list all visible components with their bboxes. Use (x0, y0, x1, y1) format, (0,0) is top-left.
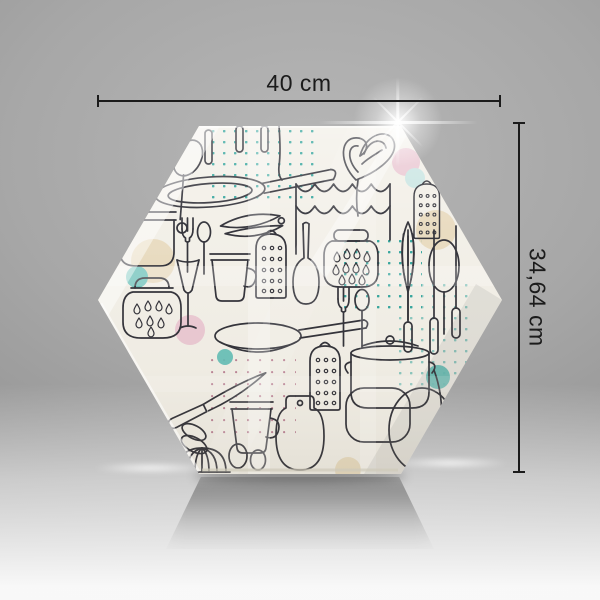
width-dimension-line (97, 100, 501, 102)
board-floor-reflection (166, 477, 434, 549)
height-dimension-line (518, 122, 520, 473)
glass-reflections (98, 126, 502, 474)
studio-scene: 40 cm 34,64 cm (0, 0, 600, 600)
height-dimension-label: 34,64 cm (523, 122, 551, 473)
floor-glint-left (92, 463, 210, 473)
dimension-tick (499, 95, 501, 107)
kitchen-doodle-pattern (98, 126, 502, 474)
width-dimension-label: 40 cm (97, 70, 501, 97)
dimension-tick (97, 95, 99, 107)
hexagon-glass-board (98, 126, 502, 474)
